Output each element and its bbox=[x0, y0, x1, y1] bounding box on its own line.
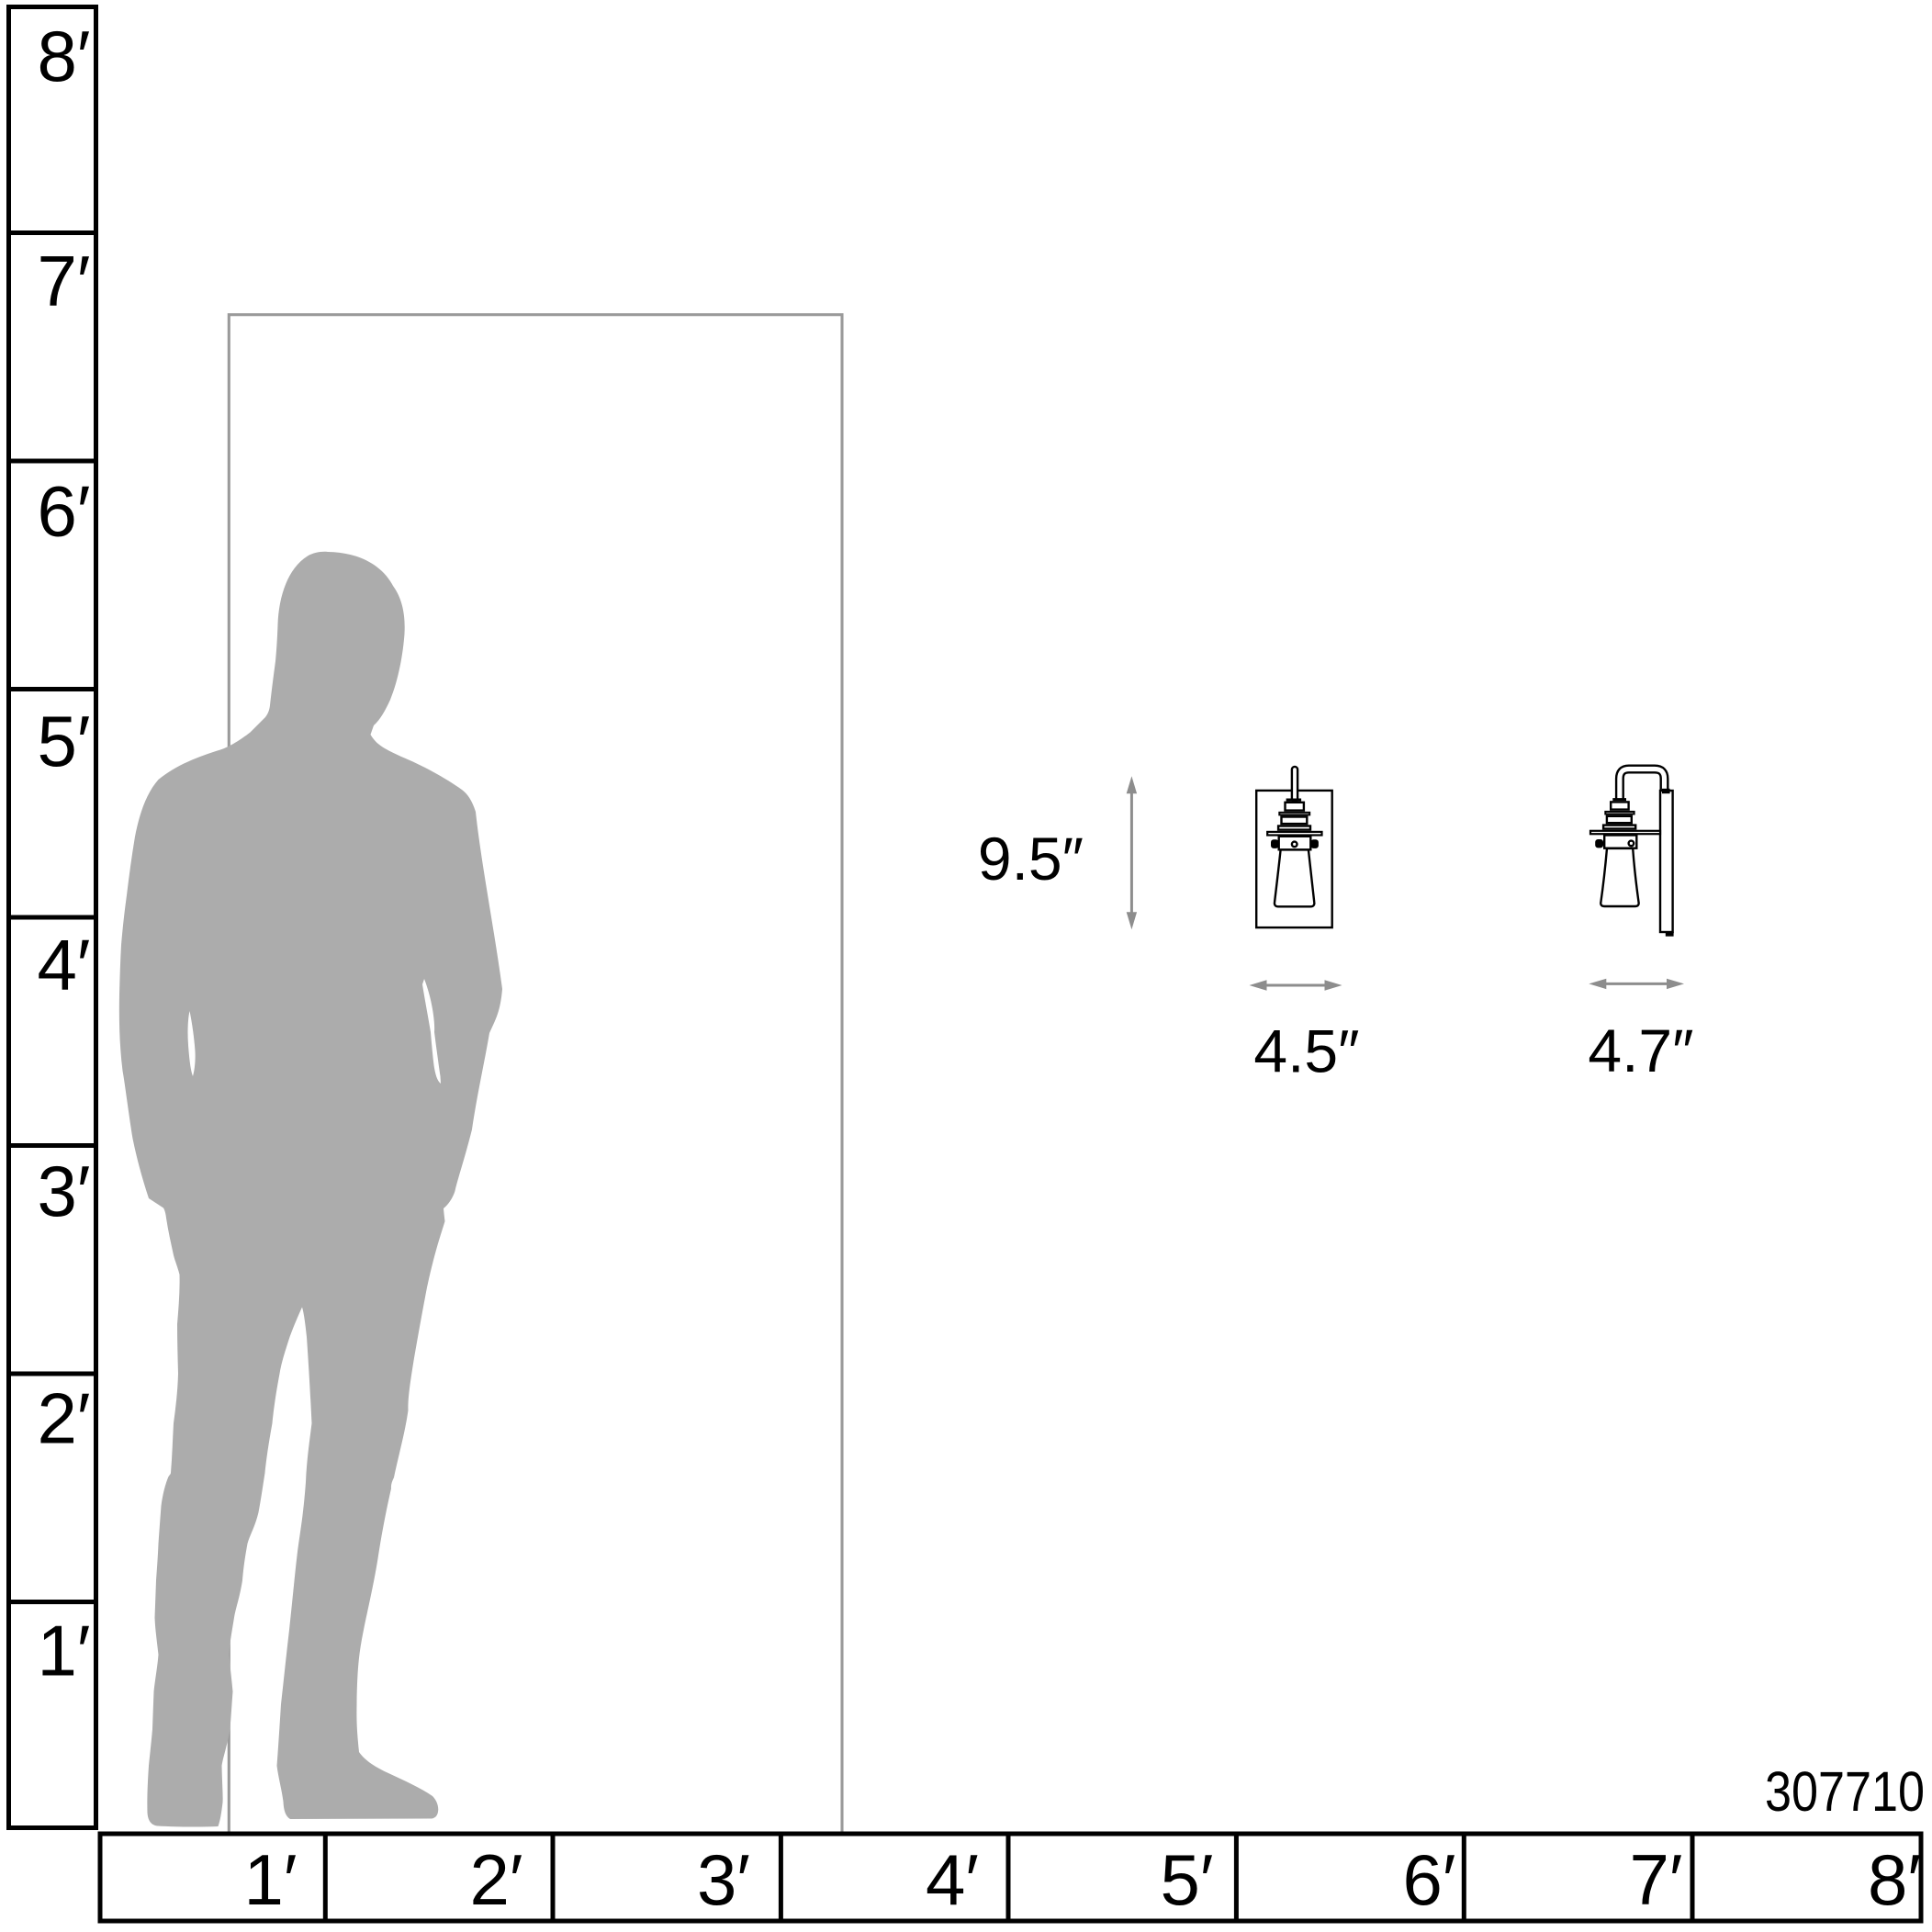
svg-text:6′: 6′ bbox=[1402, 1839, 1455, 1920]
svg-text:4′: 4′ bbox=[37, 925, 90, 1005]
svg-text:5′: 5′ bbox=[1160, 1839, 1213, 1920]
svg-text:307710: 307710 bbox=[1765, 1760, 1925, 1823]
svg-text:7′: 7′ bbox=[1629, 1839, 1682, 1920]
svg-text:7′: 7′ bbox=[37, 241, 90, 321]
svg-text:4.7″: 4.7″ bbox=[1588, 1017, 1693, 1084]
svg-text:8′: 8′ bbox=[37, 16, 90, 96]
svg-text:8′: 8′ bbox=[1868, 1839, 1921, 1920]
svg-text:1′: 1′ bbox=[37, 1611, 90, 1691]
svg-text:4.5″: 4.5″ bbox=[1253, 1017, 1359, 1085]
svg-text:9.5″: 9.5″ bbox=[978, 825, 1084, 893]
svg-text:5′: 5′ bbox=[37, 701, 90, 781]
svg-text:4′: 4′ bbox=[926, 1839, 979, 1920]
svg-text:3′: 3′ bbox=[37, 1151, 90, 1231]
svg-text:2′: 2′ bbox=[469, 1839, 522, 1920]
svg-text:1′: 1′ bbox=[243, 1839, 297, 1920]
svg-text:6′: 6′ bbox=[37, 471, 90, 552]
svg-text:3′: 3′ bbox=[697, 1839, 750, 1920]
svg-text:2′: 2′ bbox=[37, 1378, 90, 1459]
